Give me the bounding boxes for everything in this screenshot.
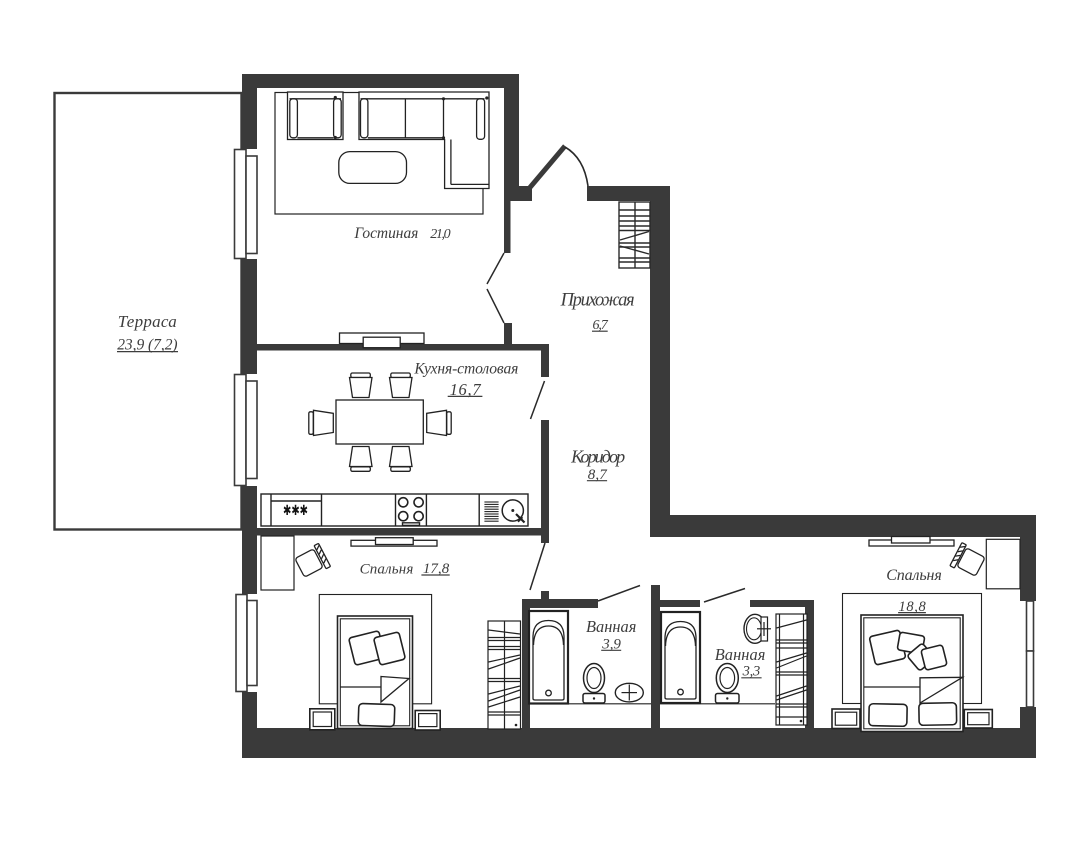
svg-text:21,0: 21,0 xyxy=(430,227,450,242)
svg-text:Ванная: Ванная xyxy=(715,645,766,664)
svg-text:3,3: 3,3 xyxy=(742,664,761,680)
svg-text:Прихожая: Прихожая xyxy=(560,291,635,311)
svg-text:23,9 (7,2): 23,9 (7,2) xyxy=(117,337,177,354)
svg-text:Спальня: Спальня xyxy=(360,561,414,577)
svg-text:Гостиная: Гостиная xyxy=(353,225,418,242)
svg-text:Кухня-столовая: Кухня-столовая xyxy=(413,361,518,378)
svg-text:Терраса: Терраса xyxy=(118,312,177,331)
svg-text:✱✱✱: ✱✱✱ xyxy=(283,502,308,518)
svg-text:Спальня: Спальня xyxy=(886,567,942,584)
svg-text:Коридор: Коридор xyxy=(570,446,625,466)
svg-text:Ванная: Ванная xyxy=(586,617,636,636)
